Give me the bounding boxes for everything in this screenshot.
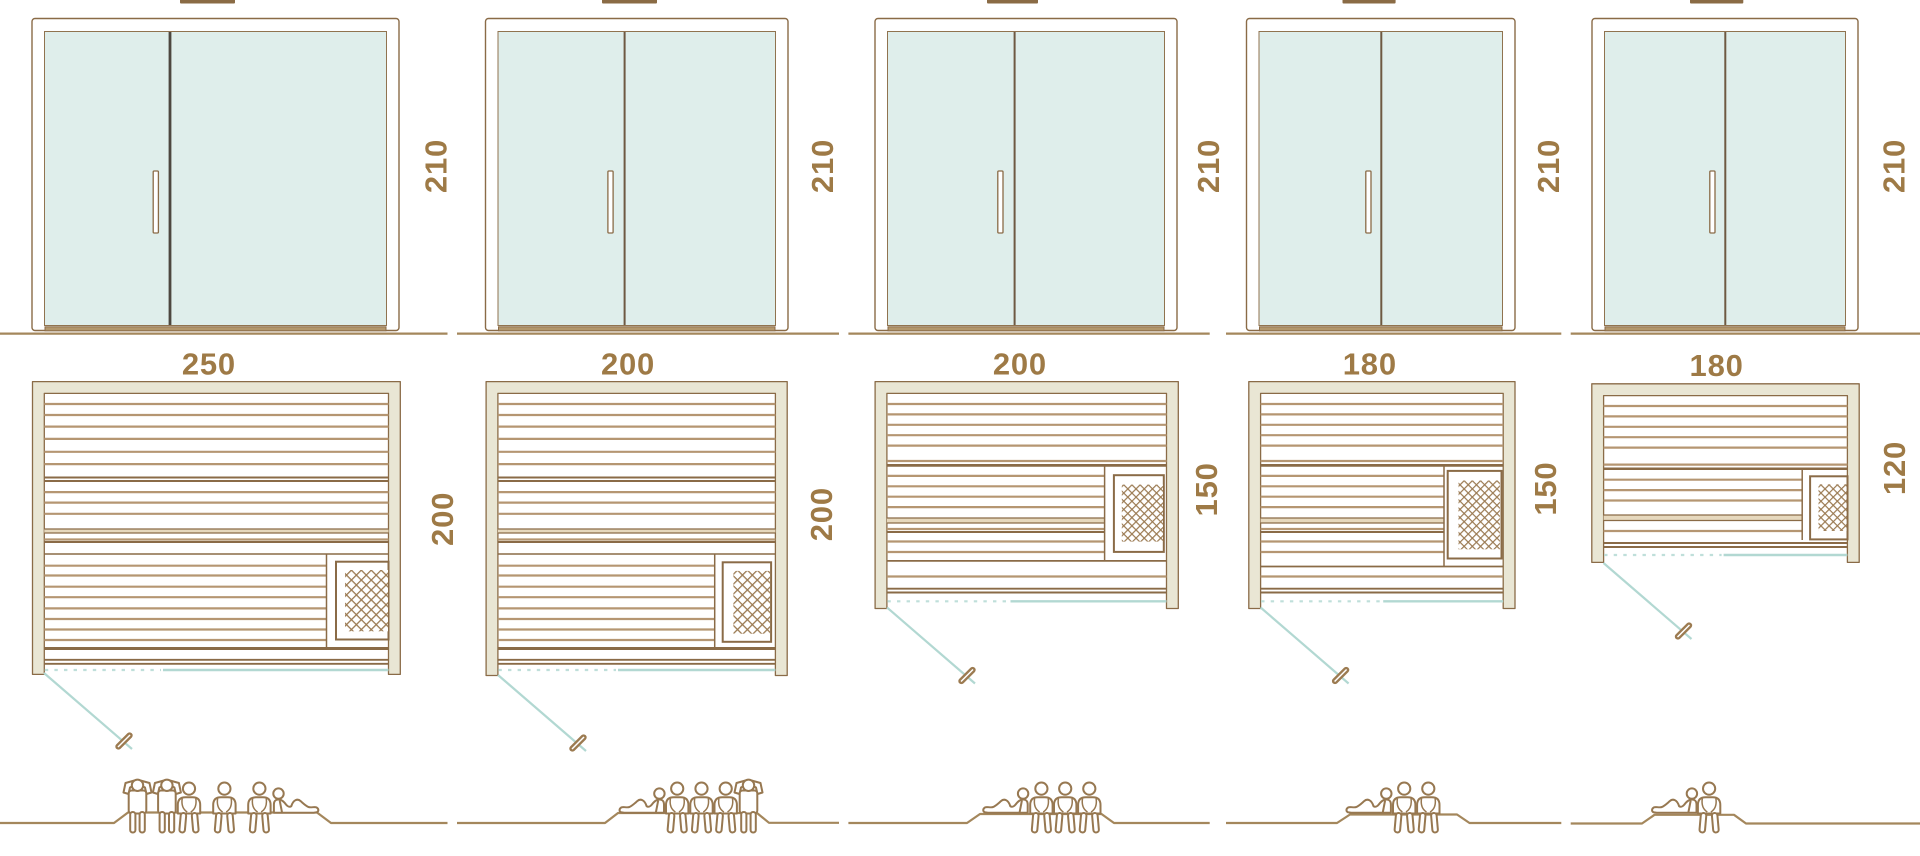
svg-text:210: 210: [1531, 139, 1566, 193]
svg-text:180: 180: [1690, 348, 1744, 383]
svg-text:210: 210: [805, 139, 840, 193]
svg-text:200: 200: [804, 487, 839, 541]
svg-text:210: 210: [419, 139, 454, 193]
svg-text:200: 200: [601, 347, 655, 382]
svg-text:210: 210: [1191, 139, 1226, 193]
svg-text:200: 200: [425, 492, 460, 546]
svg-text:150: 150: [1189, 462, 1224, 516]
svg-text:150: 150: [1528, 462, 1563, 516]
svg-text:180: 180: [1343, 347, 1397, 382]
svg-text:210: 210: [1877, 139, 1912, 193]
svg-text:120: 120: [1877, 441, 1912, 495]
svg-text:250: 250: [182, 347, 236, 382]
svg-text:200: 200: [993, 347, 1047, 382]
